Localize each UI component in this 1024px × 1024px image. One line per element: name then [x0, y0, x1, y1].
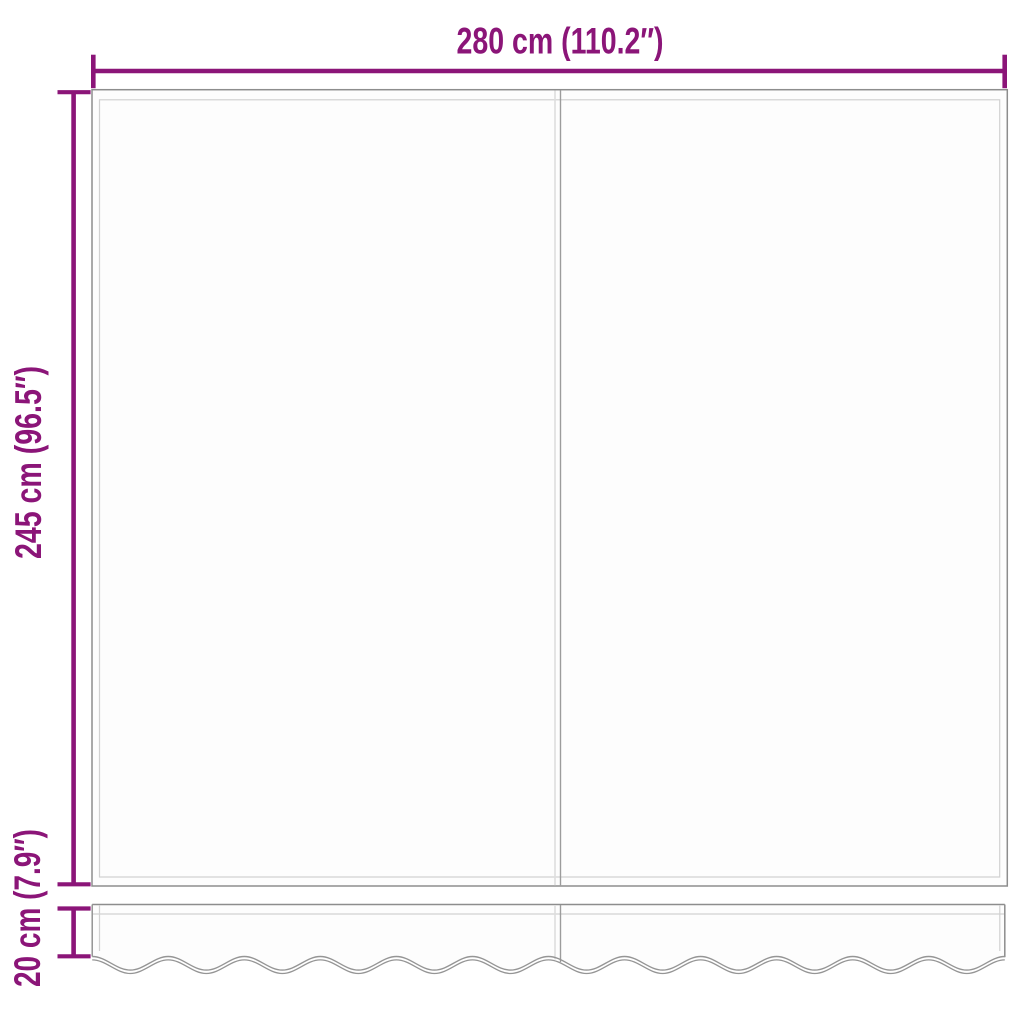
svg-text:20 cm (7.9″): 20 cm (7.9″) [6, 829, 48, 987]
svg-text:280 cm (110.2″): 280 cm (110.2″) [457, 20, 664, 62]
svg-text:245 cm (96.5″): 245 cm (96.5″) [7, 366, 49, 559]
